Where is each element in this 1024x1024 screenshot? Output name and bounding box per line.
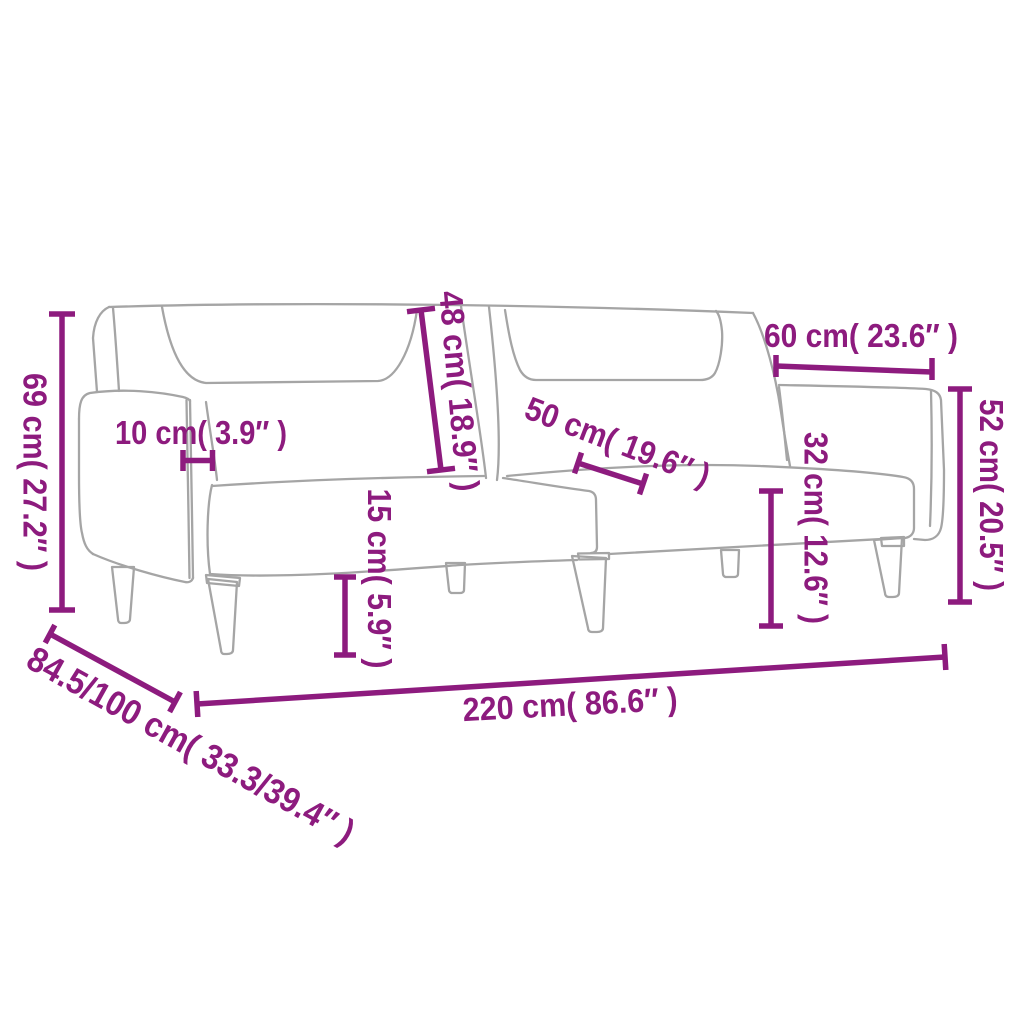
svg-text:52 cm( 20.5″ ): 52 cm( 20.5″ ) [973,399,1010,591]
svg-text:32 cm( 12.6″ ): 32 cm( 12.6″ ) [798,432,835,624]
svg-text:60 cm( 23.6″ ): 60 cm( 23.6″ ) [764,317,958,354]
svg-text:69 cm( 27.2″ ): 69 cm( 27.2″ ) [17,373,54,571]
svg-text:10 cm( 3.9″ ): 10 cm( 3.9″ ) [115,414,287,451]
svg-text:15 cm( 5.9″ ): 15 cm( 5.9″ ) [361,489,398,669]
